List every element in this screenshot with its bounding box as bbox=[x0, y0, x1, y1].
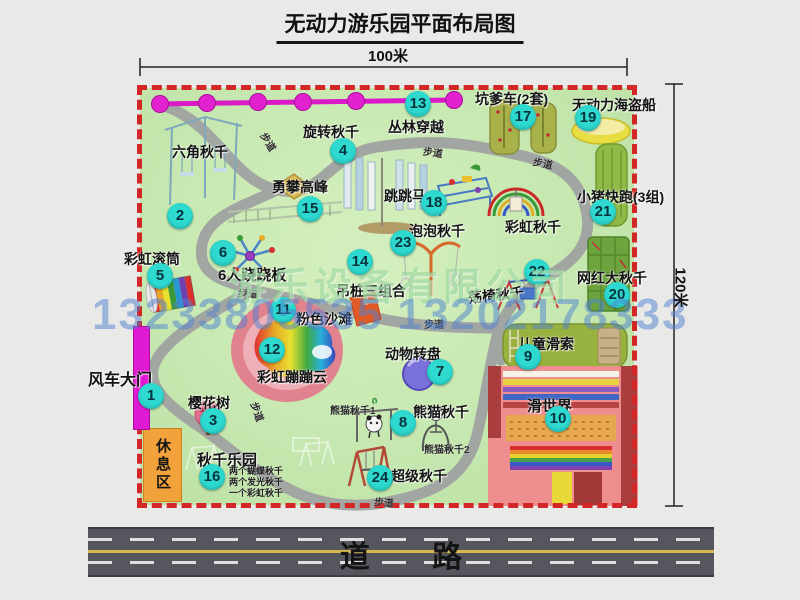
badge-rotating-swing: 4 bbox=[330, 138, 356, 164]
rainbow-swing-structure bbox=[489, 189, 543, 216]
path-tag-7: 步道 bbox=[374, 493, 395, 509]
playground-layout-map: 无动力游乐园平面布局图 bbox=[0, 0, 800, 600]
badge-jungle-crossing: 13 bbox=[405, 91, 431, 117]
badge-windmill-gate: 1 bbox=[138, 383, 164, 409]
note-swing-park-1: 两个蝴蝶秋千 bbox=[229, 466, 283, 477]
badge-pirate-ship: 19 bbox=[575, 105, 601, 131]
rest-area-label: 休息区 bbox=[152, 438, 173, 492]
label-rotating-swing: 旋转秋千 bbox=[303, 122, 359, 142]
label-panda-swing: 熊猫秋千 bbox=[413, 402, 469, 422]
badge-panda-swing: 8 bbox=[390, 410, 416, 436]
badge-slide-world: 10 bbox=[545, 406, 571, 432]
note-panda-swing-1: 熊猫秋千1 bbox=[330, 402, 376, 417]
note-panda-swing-2: 熊猫秋千2 bbox=[424, 441, 470, 456]
road-band: 道 路 bbox=[88, 527, 714, 577]
badge-animal-carousel: 7 bbox=[427, 359, 453, 385]
badge-piggy-run: 21 bbox=[590, 199, 616, 225]
badge-climbing-peak: 15 bbox=[297, 196, 323, 222]
label-piggy-run: 小猪快跑(3组) bbox=[577, 187, 664, 207]
badge-bubble-swing: 23 bbox=[390, 230, 416, 256]
height-dimension-label: 120米 bbox=[671, 258, 692, 318]
badge-cherry-tree: 3 bbox=[200, 408, 226, 434]
rest-area-zone: 休息区 bbox=[143, 428, 182, 502]
badge-rainbow-bounce-cloud: 12 bbox=[259, 337, 285, 363]
watermark-phone: 13233805535 13202178333 bbox=[92, 290, 689, 340]
badge-jumping-horse: 18 bbox=[421, 190, 447, 216]
path-tag-2: 步道 bbox=[422, 143, 444, 161]
label-jumping-horse: 跳跳马 bbox=[384, 186, 426, 206]
badge-swing-park: 16 bbox=[199, 464, 225, 490]
label-hexagon-swing: 六角秋千 bbox=[172, 142, 228, 162]
road-label: 道 路 bbox=[88, 532, 714, 576]
label-super-swing: 超级秋千 bbox=[391, 466, 447, 486]
jumping-horse-structure bbox=[438, 164, 492, 216]
label-jungle-crossing: 丛林穿越 bbox=[388, 117, 444, 137]
label-rainbow-bounce-cloud: 彩虹蹦蹦云 bbox=[257, 367, 327, 387]
label-kengdie-car: 坑爹车(2套) bbox=[475, 89, 548, 109]
note-swing-park-3: 一个彩虹秋千 bbox=[229, 488, 283, 499]
label-bubble-swing: 泡泡秋千 bbox=[409, 221, 465, 241]
page-title: 无动力游乐园平面布局图 bbox=[277, 8, 524, 44]
badge-hexagon-swing: 2 bbox=[167, 203, 193, 229]
badge-rainbow-roller: 5 bbox=[147, 263, 173, 289]
slide-world-area bbox=[488, 366, 638, 506]
badge-kids-zipline: 9 bbox=[515, 344, 541, 370]
width-dimension-label: 100米 bbox=[368, 45, 408, 66]
badge-kengdie-car: 17 bbox=[510, 104, 536, 130]
badge-super-swing: 24 bbox=[367, 465, 393, 491]
note-swing-park-2: 两个发光秋千 bbox=[229, 477, 283, 488]
label-climbing-peak: 勇攀高峰 bbox=[272, 177, 328, 197]
label-rainbow-swing: 彩虹秋千 bbox=[505, 217, 561, 237]
